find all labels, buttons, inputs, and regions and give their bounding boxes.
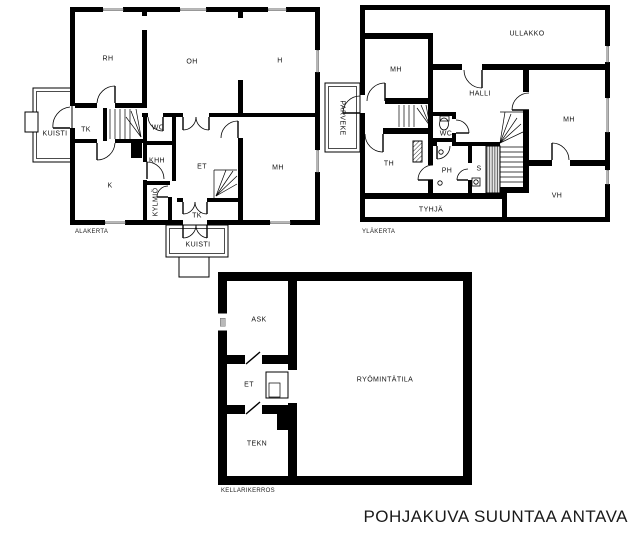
alakerta-stairs-up <box>110 109 141 139</box>
room-label-ph: PH <box>442 168 453 175</box>
alakerta-stairs-down <box>214 170 237 198</box>
room-label-oh: OH <box>186 59 197 66</box>
room-label-kuisti-left: KUISTI <box>43 131 68 138</box>
floor-label-ylakerta: YLÄKERTA <box>362 229 395 235</box>
kellari-window <box>218 311 227 333</box>
room-label-tk-bottom: TK <box>192 213 202 220</box>
room-label-th: TH <box>384 161 394 168</box>
floor-label-alakerta: ALAKERTA <box>75 229 108 235</box>
floorplan-drawing <box>0 0 640 535</box>
room-label-tyhja: TYHJÄ <box>419 207 443 214</box>
ylakerta-fixtures <box>438 116 480 186</box>
room-label-halli: HALLI <box>469 91 490 98</box>
ylakerta-stairs-main <box>500 112 523 182</box>
room-label-ask: ASK <box>251 317 266 324</box>
room-label-h: H <box>277 58 282 65</box>
room-label-khh: KHH <box>149 158 165 165</box>
room-label-kylmio: KYLMIÖ <box>153 188 160 217</box>
kuisti-bottom-porch <box>166 225 228 277</box>
kuisti-left-porch <box>25 88 72 162</box>
chimney-hatch <box>413 141 422 162</box>
room-label-tekn: TEKN <box>247 441 267 448</box>
room-label-tk-left: TK <box>81 127 91 134</box>
room-label-k: K <box>107 183 112 190</box>
room-label-ullakko: ULLAKKO <box>509 31 544 38</box>
room-label-mh-a: MH <box>272 165 284 172</box>
kellari-plan <box>218 272 472 485</box>
room-label-s: S <box>476 166 481 173</box>
room-label-et-c: ET <box>244 382 254 389</box>
sauna-wall-hatch <box>486 146 500 193</box>
ylakerta-stairs-small <box>399 105 430 127</box>
alakerta-plan <box>25 7 320 277</box>
floor-label-kellari: KELLARIKERROS <box>221 488 275 494</box>
room-label-rh: RH <box>103 56 114 63</box>
room-label-et-a: ET <box>197 164 207 171</box>
room-label-mh-right: MH <box>563 117 575 124</box>
disclaimer-text: POHJAKUVA SUUNTAA ANTAVA <box>363 507 628 527</box>
room-label-kuisti-bottom: KUISTI <box>186 242 211 249</box>
room-label-parveke: PARVEKE <box>339 100 346 135</box>
floorplan-canvas: RH OH H KUISTI TK WC KHH ET MH K KYLMIÖ … <box>0 0 640 535</box>
room-label-ryomintatila: RYÖMINTÄTILA <box>357 377 413 384</box>
room-label-mh-left: MH <box>390 67 402 74</box>
room-label-vh: VH <box>552 193 563 200</box>
room-label-wc-a: WC <box>152 125 164 132</box>
chimney-block <box>131 142 142 158</box>
ylakerta-plan <box>325 5 610 222</box>
room-label-wc-b: WC <box>440 131 452 138</box>
